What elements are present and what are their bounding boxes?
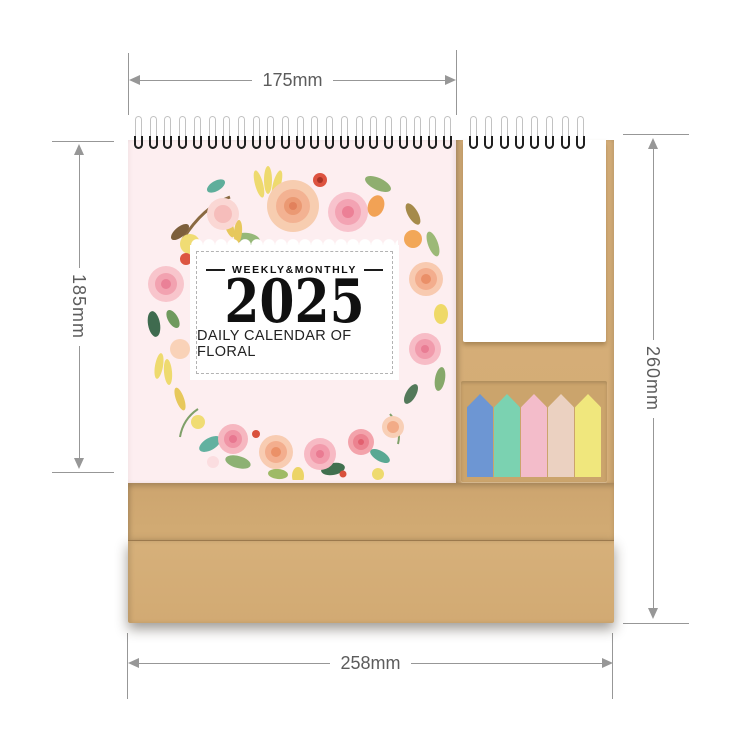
spiral-binding-left	[134, 116, 452, 152]
base-stand-lower	[128, 540, 614, 623]
binding-coil	[484, 116, 493, 152]
binding-coil	[178, 116, 187, 152]
binding-coil	[193, 116, 202, 152]
dimension-label-left: 185mm	[69, 274, 90, 339]
binding-coil	[413, 116, 422, 152]
binding-coil	[281, 116, 290, 152]
binding-coil	[545, 116, 554, 152]
binding-coil	[443, 116, 452, 152]
arrow-right-icon	[445, 75, 456, 85]
binding-coil	[500, 116, 509, 152]
spiral-binding-right	[469, 116, 585, 152]
dim-tick-top-right	[456, 50, 457, 115]
binding-coil	[340, 116, 349, 152]
dimension-label-top: 175mm	[252, 70, 332, 91]
binding-coil	[208, 116, 217, 152]
binding-coil	[149, 116, 158, 152]
binding-coil	[469, 116, 478, 152]
arrow-up-icon	[648, 138, 658, 149]
binding-coil	[384, 116, 393, 152]
arrow-down-icon	[648, 608, 658, 619]
dimension-width-top: 175mm	[129, 71, 456, 89]
sticky-tab	[521, 394, 547, 477]
memo-notepad	[463, 140, 606, 342]
binding-coil	[428, 116, 437, 152]
binding-coil	[576, 116, 585, 152]
arrow-left-icon	[128, 658, 139, 668]
binding-coil	[325, 116, 334, 152]
dimension-height-right: 260mm	[642, 138, 664, 619]
dim-tick-left-top	[52, 141, 114, 142]
binding-coil	[399, 116, 408, 152]
dim-tick-left-bottom	[52, 472, 114, 473]
binding-coil	[296, 116, 305, 152]
binding-coil	[163, 116, 172, 152]
arrow-left-icon	[129, 75, 140, 85]
binding-coil	[310, 116, 319, 152]
arrow-up-icon	[74, 144, 84, 155]
dimension-label-bottom: 258mm	[330, 653, 410, 674]
product-image: 175mm 185mm 260mm 258mm	[0, 0, 750, 750]
arrow-down-icon	[74, 458, 84, 469]
cover-title-card: WEEKLY&MONTHLY 2025 DAILY CALENDAR OF FL…	[190, 245, 399, 380]
sticky-tab	[548, 394, 574, 477]
dimension-width-bottom: 258mm	[128, 654, 613, 672]
cover-year: 2025	[224, 276, 364, 328]
arrow-right-icon	[602, 658, 613, 668]
binding-coil	[369, 116, 378, 152]
sticky-tab	[575, 394, 601, 477]
base-stand-upper	[128, 483, 614, 540]
binding-coil	[515, 116, 524, 152]
binding-coil	[237, 116, 246, 152]
scallop-edge	[191, 238, 398, 246]
binding-coil	[252, 116, 261, 152]
side-panel	[456, 140, 614, 483]
binding-coil	[561, 116, 570, 152]
dimension-label-right: 260mm	[643, 346, 664, 411]
sticky-tabs-holder	[461, 381, 607, 482]
binding-coil	[222, 116, 231, 152]
dim-tick-right-top	[623, 134, 689, 135]
binding-coil	[355, 116, 364, 152]
dimension-height-left: 185mm	[68, 144, 90, 469]
binding-coil	[530, 116, 539, 152]
binding-coil	[134, 116, 143, 152]
sticky-tab	[467, 394, 493, 477]
binding-coil	[266, 116, 275, 152]
sticky-tab	[494, 394, 520, 477]
dim-tick-right-bottom	[623, 623, 689, 624]
